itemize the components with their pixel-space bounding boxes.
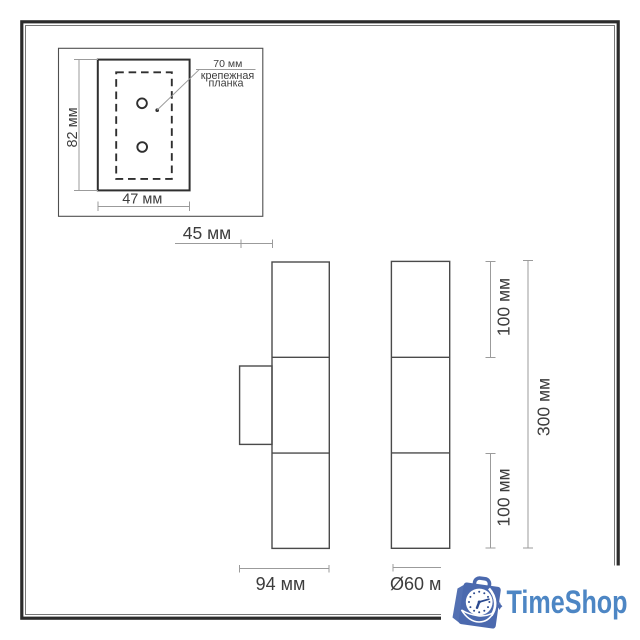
svg-text:82 мм: 82 мм — [65, 107, 81, 147]
svg-text:100 мм: 100 мм — [494, 278, 514, 336]
svg-text:300 мм: 300 мм — [534, 378, 554, 436]
svg-text:TimeShop: TimeShop — [507, 584, 628, 620]
svg-text:45 мм: 45 мм — [183, 223, 231, 243]
svg-text:70 мм: 70 мм — [213, 58, 242, 70]
svg-text:планка: планка — [208, 78, 243, 90]
svg-text:100 мм: 100 мм — [494, 468, 514, 526]
svg-text:94 мм: 94 мм — [256, 574, 306, 594]
svg-text:Ø60 м: Ø60 м — [390, 574, 441, 594]
svg-text:47 мм: 47 мм — [122, 191, 162, 207]
